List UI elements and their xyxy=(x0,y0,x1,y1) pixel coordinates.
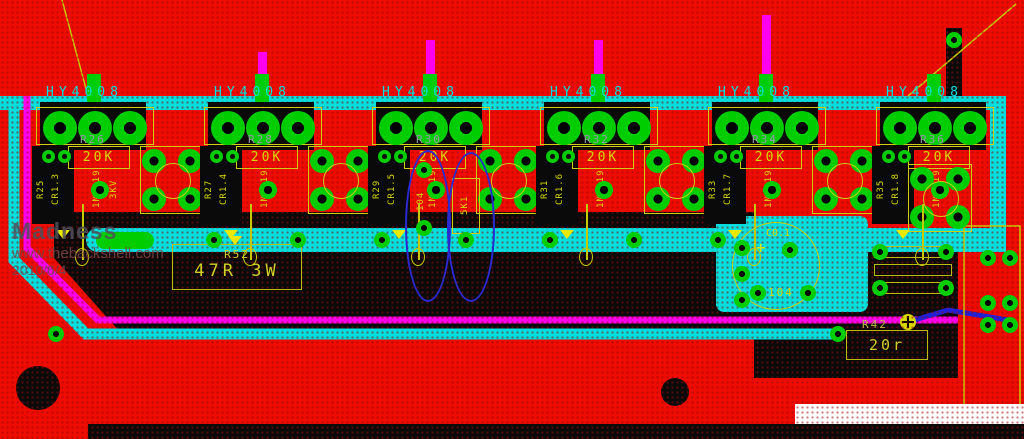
round-body-silk xyxy=(491,163,527,199)
mosfet-stage[interactable]: HY4008 R32 20K R31 CR1.6 1N5819 xyxy=(542,0,710,439)
mosfet-pad xyxy=(785,111,819,145)
pad xyxy=(710,232,726,248)
watermark-url: www.thebackshell.com xyxy=(12,245,164,262)
selection-ellipse-2 xyxy=(447,152,495,302)
ring-pad xyxy=(90,180,110,200)
resistor-r52[interactable]: R52 47R 3W xyxy=(172,244,302,290)
mosfet-part-label: HY4008 xyxy=(46,85,123,100)
round-body-silk xyxy=(827,163,863,199)
small-pad xyxy=(58,150,71,163)
gate-resistor-ref: R26 xyxy=(80,133,106,146)
pad xyxy=(206,232,222,248)
pad xyxy=(800,285,816,301)
pad xyxy=(734,266,750,282)
mosfet-pad xyxy=(617,111,651,145)
watermark-date: 2010/6/4 xyxy=(12,262,164,278)
small-pad xyxy=(42,150,55,163)
pad xyxy=(872,244,888,260)
pad xyxy=(290,232,306,248)
small-pad xyxy=(882,150,895,163)
cap-value: 104 xyxy=(768,286,794,299)
vertical-ref-label: 3KV xyxy=(109,150,121,228)
gate-resistor-ref: R30 xyxy=(416,133,442,146)
jumper-loop-silk xyxy=(579,248,593,266)
mosfet-pad xyxy=(113,111,147,145)
pad xyxy=(938,244,954,260)
small-pad xyxy=(226,150,239,163)
quad-pad-component[interactable] xyxy=(812,146,876,214)
mosfet-part-label: HY4008 xyxy=(550,85,627,100)
gate-resistor-ref: R32 xyxy=(584,133,610,146)
cap-plus-mark: + xyxy=(756,238,766,257)
round-body-silk xyxy=(923,181,959,217)
mosfet-pad xyxy=(379,111,413,145)
pad xyxy=(374,232,390,248)
quad-pad-component[interactable] xyxy=(644,146,708,214)
resistor-r42[interactable]: 20r xyxy=(846,330,928,360)
small-pad xyxy=(378,150,391,163)
pad xyxy=(872,280,888,296)
pad xyxy=(946,32,962,48)
mosfet-stage[interactable]: HY4008 R36 20K R35 CR1.8 1N5819 xyxy=(878,0,1024,439)
pad xyxy=(626,232,642,248)
watermark: Madness www.thebackshell.com 2010/6/4 xyxy=(12,218,164,278)
connector-bar xyxy=(874,264,952,276)
mosfet-pad xyxy=(281,111,315,145)
mosfet-part-label: HY4008 xyxy=(382,85,459,100)
r52-value: 47R 3W xyxy=(173,261,301,281)
round-body-silk xyxy=(323,163,359,199)
mosfet-pad xyxy=(953,111,987,145)
pad xyxy=(750,285,766,301)
polarity-arrow xyxy=(896,230,910,239)
ring-pad xyxy=(258,180,278,200)
r52-arrow xyxy=(228,236,242,245)
quad-pad-component[interactable] xyxy=(308,146,372,214)
pad xyxy=(980,317,996,333)
quad-pad-component[interactable] xyxy=(140,146,204,214)
round-body-silk xyxy=(659,163,695,199)
mosfet-pad xyxy=(211,111,245,145)
gate-resistor-ref: R36 xyxy=(920,133,946,146)
small-pad xyxy=(394,150,407,163)
selection-ellipse-1 xyxy=(405,150,451,302)
pad xyxy=(542,232,558,248)
small-pad xyxy=(562,150,575,163)
mosfet-part-label: HY4008 xyxy=(214,85,291,100)
ring-pad xyxy=(594,180,614,200)
small-pad xyxy=(730,150,743,163)
small-pad xyxy=(898,150,911,163)
small-pad xyxy=(210,150,223,163)
pad xyxy=(1002,250,1018,266)
mosfet-pad xyxy=(715,111,749,145)
pad xyxy=(1002,295,1018,311)
r52-ref: R52 xyxy=(173,248,301,261)
pad xyxy=(1002,317,1018,333)
mosfet-pad xyxy=(883,111,917,145)
pad xyxy=(830,326,846,342)
pcb-canvas[interactable]: HY4008 R26 20K R25 CR1.3 1N5819 3KV HY40… xyxy=(0,0,1024,439)
pad xyxy=(734,292,750,308)
mosfet-part-label: HY4008 xyxy=(718,85,795,100)
pad xyxy=(980,250,996,266)
polarity-arrow xyxy=(392,230,406,239)
pad xyxy=(980,295,996,311)
polarity-arrow xyxy=(560,230,574,239)
mosfet-pad xyxy=(449,111,483,145)
watermark-title: Madness xyxy=(12,218,164,245)
round-body-silk xyxy=(155,163,191,199)
pad xyxy=(48,326,64,342)
gate-resistor-ref: R34 xyxy=(752,133,778,146)
mosfet-stage[interactable]: HY4008 R28 20K R27 CR1.4 1N5819 xyxy=(206,0,374,439)
pad xyxy=(782,242,798,258)
pad xyxy=(734,240,750,256)
quad-pad-component[interactable] xyxy=(908,164,972,232)
small-pad xyxy=(546,150,559,163)
mosfet-part-label: HY4008 xyxy=(886,85,963,100)
polarity-arrow xyxy=(728,230,742,239)
ring-pad xyxy=(762,180,782,200)
small-pad xyxy=(714,150,727,163)
pad xyxy=(938,280,954,296)
mosfet-pad xyxy=(43,111,77,145)
r42-value: 20r xyxy=(869,336,905,354)
mosfet-pad xyxy=(547,111,581,145)
gate-resistor-ref: R28 xyxy=(248,133,274,146)
cap-ref: C0.1 xyxy=(766,228,790,239)
mosfet-stage[interactable]: HY4008 R34 20K R33 CR1.7 1N5819 xyxy=(710,0,878,439)
